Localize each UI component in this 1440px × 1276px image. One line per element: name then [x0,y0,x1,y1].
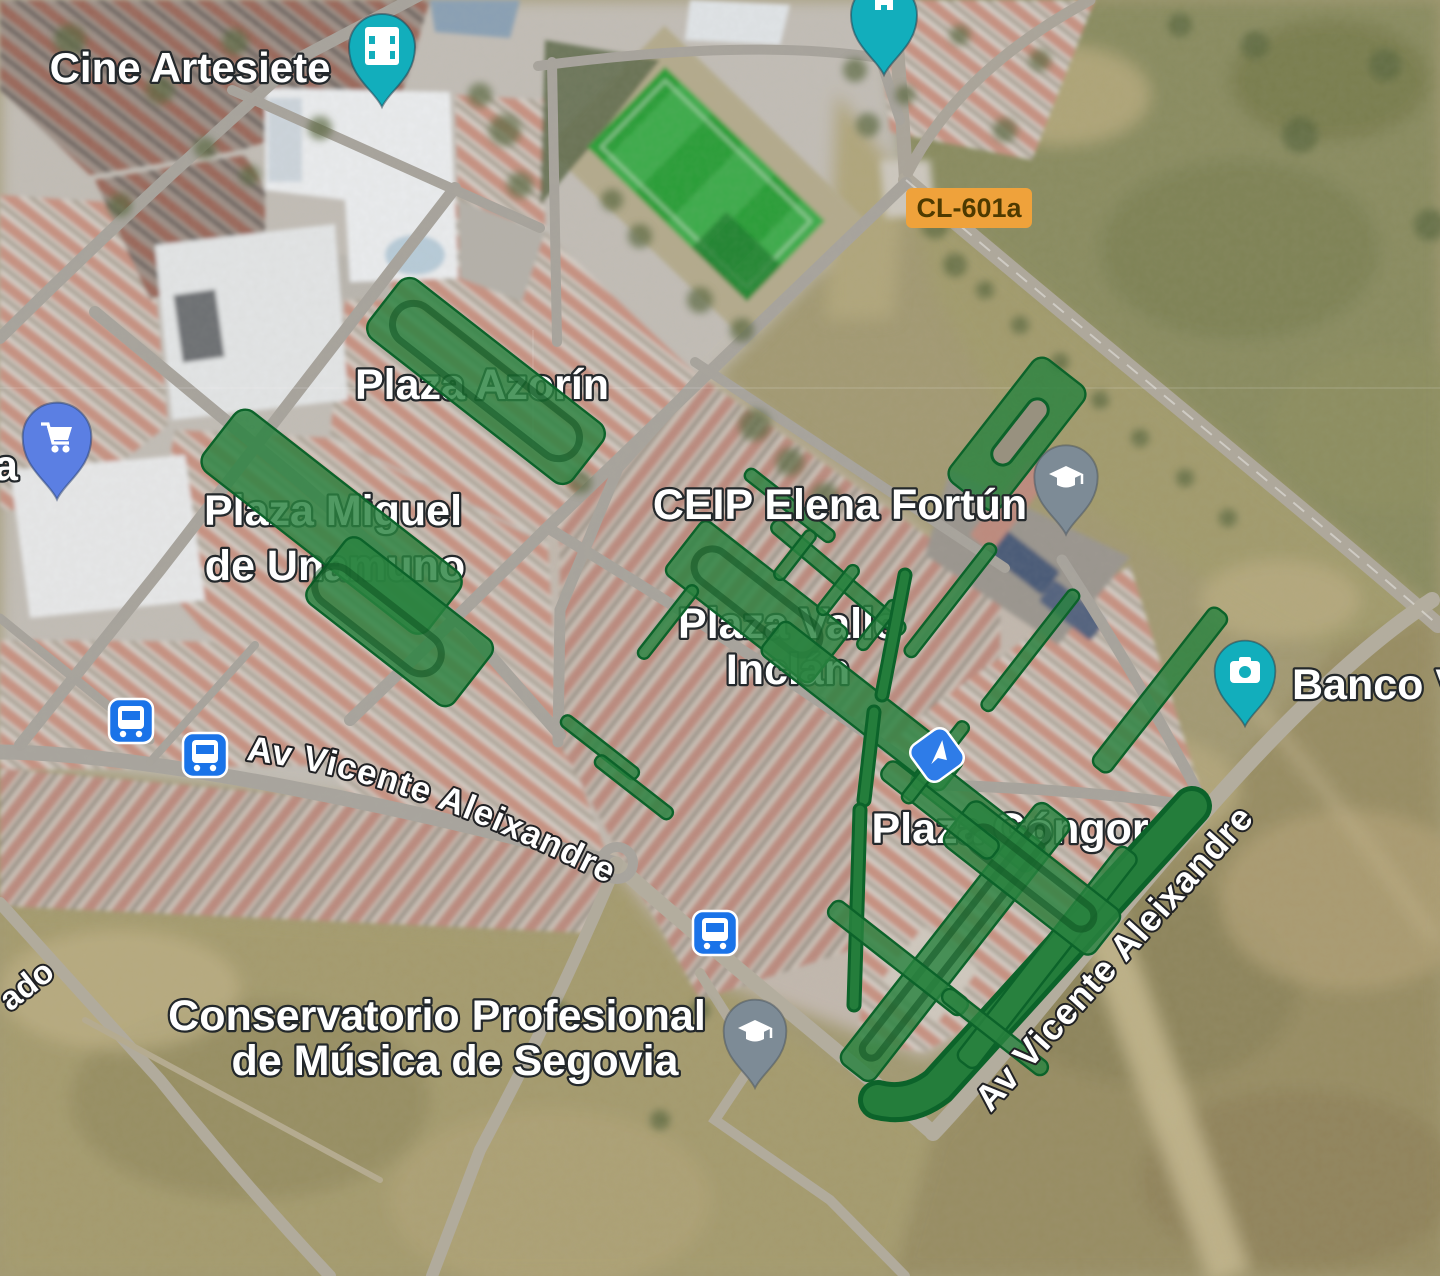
svg-text:de Música de Segovia: de Música de Segovia [232,1037,680,1085]
svg-text:Banco V: Banco V [1292,661,1440,709]
svg-text:a: a [0,442,19,490]
svg-text:CEIP Elena Fortún: CEIP Elena Fortún [653,481,1027,529]
svg-text:Cine Artesiete: Cine Artesiete [50,44,331,91]
svg-text:CL-601a: CL-601a [916,193,1022,223]
svg-text:Conservatorio Profesional: Conservatorio Profesional [168,992,706,1040]
